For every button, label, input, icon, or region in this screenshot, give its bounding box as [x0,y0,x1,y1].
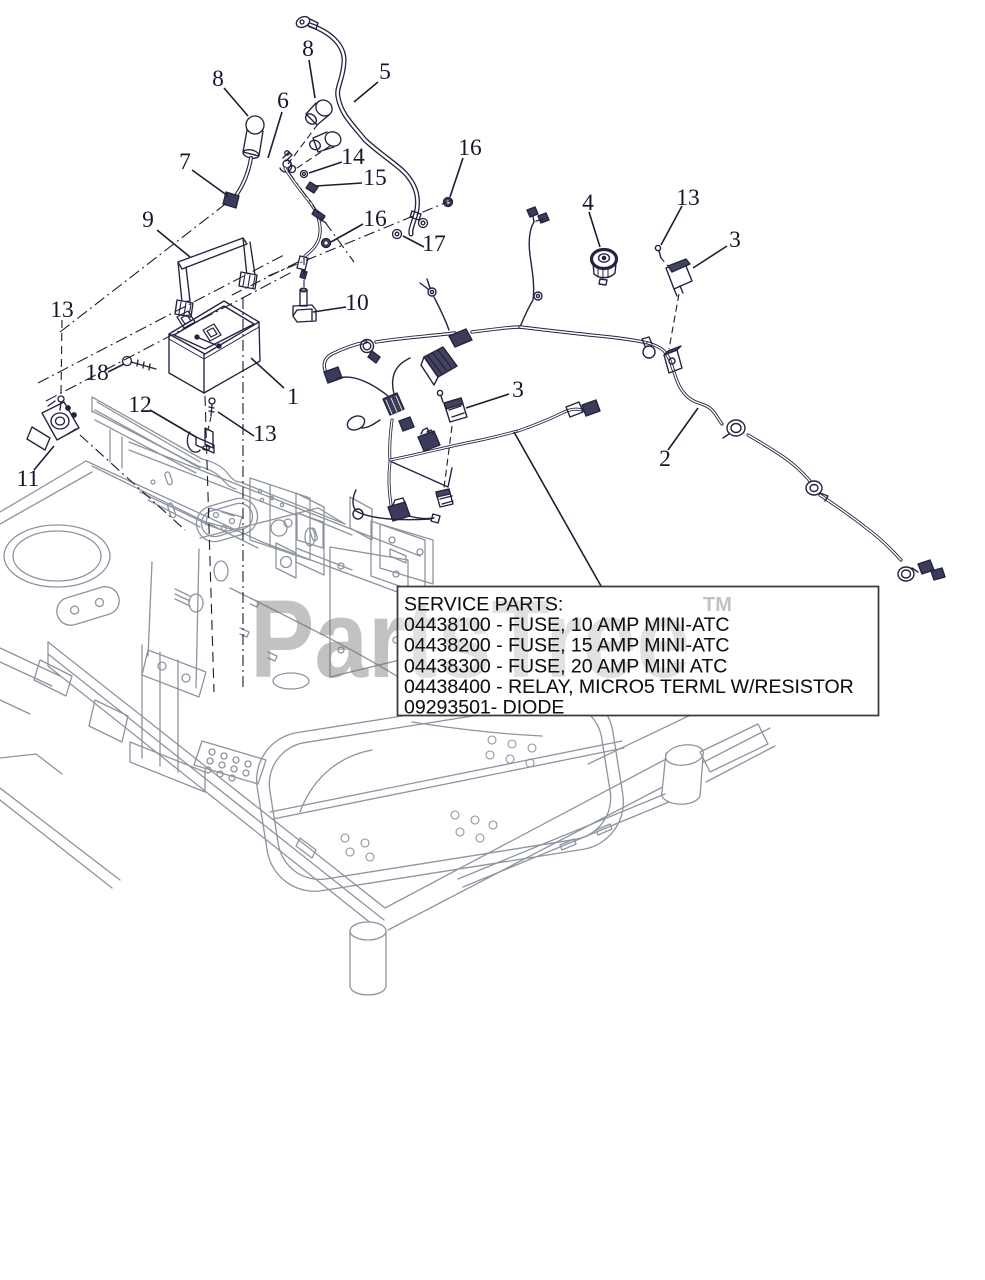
svg-text:10: 10 [345,290,369,316]
svg-text:13: 13 [253,421,277,447]
svg-text:11: 11 [17,466,40,492]
svg-text:2: 2 [659,446,671,472]
svg-text:13: 13 [676,185,700,211]
svg-text:7: 7 [179,149,191,175]
svg-text:4: 4 [582,190,594,216]
svg-text:6: 6 [277,88,289,114]
svg-text:5: 5 [379,59,391,85]
svg-text:18: 18 [85,360,109,386]
svg-text:04438200 - FUSE, 15 AMP MINI-A: 04438200 - FUSE, 15 AMP MINI-ATC [404,635,730,657]
svg-text:09293501- DIODE: 09293501- DIODE [404,697,564,719]
svg-text:17: 17 [422,231,446,257]
svg-text:16: 16 [458,135,482,161]
svg-text:TM: TM [703,594,732,616]
svg-text:04438400 - RELAY, MICRO5 TERML: 04438400 - RELAY, MICRO5 TERML W/RESISTO… [404,676,854,698]
svg-text:8: 8 [212,66,224,92]
svg-text:04438300 - FUSE, 20 AMP MINI A: 04438300 - FUSE, 20 AMP MINI ATC [404,655,727,677]
svg-text:14: 14 [341,144,365,170]
svg-text:13: 13 [50,297,74,323]
svg-text:1: 1 [287,384,299,410]
svg-text:15: 15 [363,165,387,191]
svg-text:SERVICE PARTS:: SERVICE PARTS: [404,594,563,616]
svg-text:3: 3 [512,377,524,403]
svg-text:3: 3 [729,227,741,253]
svg-text:9: 9 [142,207,154,233]
svg-text:16: 16 [363,206,387,232]
svg-text:12: 12 [128,392,152,418]
svg-text:8: 8 [302,36,314,62]
svg-text:04438100 - FUSE, 10 AMP MINI-A: 04438100 - FUSE, 10 AMP MINI-ATC [404,614,730,636]
